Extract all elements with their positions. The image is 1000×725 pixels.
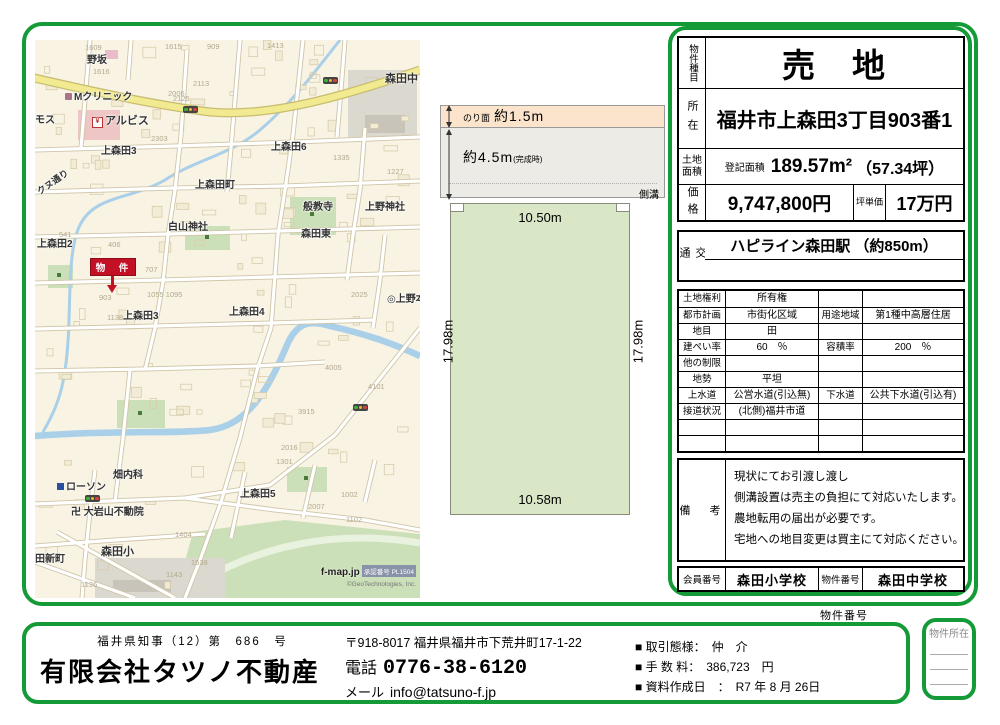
property-location-label: 物件所在 — [926, 625, 972, 640]
member-table: 会員番号 森田小学校 物件番号 森田中学校 — [677, 566, 965, 592]
detail-value — [862, 291, 963, 307]
license-number: 福井県知事（12）第 686 号 — [40, 633, 345, 649]
map-label: 上森田3 — [101, 147, 137, 157]
unit-price-label: 坪単価 — [853, 185, 885, 220]
deal-term-line: ■ 取引態様： 仲 介 — [635, 637, 892, 657]
map-label: 畑内科 — [113, 471, 143, 481]
map-brand: f-map.jp — [321, 567, 360, 578]
parcel-number: 909 — [207, 43, 220, 51]
map-label: 田新町 — [35, 555, 65, 565]
fill-value: 約4.5m — [463, 149, 513, 165]
map-label: ローソン — [57, 483, 106, 493]
company-address: 〒918-8017 福井県福井市下荒井町17-1-22 — [345, 632, 635, 651]
side-ditch-label: 側溝 — [639, 191, 659, 201]
property-marker-arrowhead — [107, 285, 117, 293]
detail-value — [862, 420, 963, 435]
property-number-value: 森田中学校 — [862, 568, 963, 590]
map-label: ◎上野本 — [387, 295, 420, 305]
property-address: 福井市上森田3丁目903番1 — [705, 89, 963, 148]
property-info-panel: 物件種目 売 地 所在 福井市上森田3丁目903番1 土地面積 登記面積 189… — [668, 26, 972, 596]
detail-label: 他の制限 — [679, 356, 725, 371]
detail-label — [818, 356, 862, 371]
map-label: 白山神社 — [168, 223, 208, 233]
price-label: 価格 — [679, 185, 705, 220]
detail-label: 土地権利 — [679, 291, 725, 307]
map-label: 卍 大岩山不動院 — [71, 508, 144, 518]
agency-identity: 福井県知事（12）第 686 号 有限会社タツノ不動産 — [40, 631, 345, 695]
detail-label — [818, 436, 862, 451]
map-label: 上森田4 — [229, 308, 265, 318]
ditch-notch-left — [450, 203, 464, 212]
parcel-number: 2303 — [151, 135, 168, 143]
map-label: 森田東 — [301, 230, 331, 240]
detail-value: 公共下水道(引込有) — [862, 388, 963, 403]
map-label: 野坂 — [87, 56, 107, 66]
parcel-number: 1538 — [191, 559, 208, 567]
map-label: 上野神社 — [365, 203, 405, 213]
blank-line — [930, 684, 968, 685]
detail-value — [725, 436, 818, 451]
parcel-number: 1615 — [165, 43, 182, 51]
map-label: モス — [35, 116, 55, 126]
parcel-number: 2007 — [308, 503, 325, 511]
map-label: 森田中 — [385, 74, 418, 85]
transport-label: 交通 — [679, 232, 705, 280]
parcel-number: 1404 — [175, 531, 192, 539]
parcel-number: 1301 — [276, 458, 293, 466]
remarks-line: 側溝設置は売主の負担にて対応いたします。 — [734, 488, 964, 509]
parcel-number: 1616 — [93, 68, 110, 76]
detail-value: 公営水道(引込無) — [725, 388, 818, 403]
detail-value — [862, 372, 963, 387]
location-label: 所在 — [679, 89, 705, 148]
transport-table: 交通 ハピライン森田駅 （約850m） — [677, 230, 965, 282]
area-label: 土地面積 — [679, 149, 705, 184]
remarks-text: 現状にてお引渡し渡し側溝設置は売主の負担にて対応いたします。農地転用の届出が必要… — [725, 460, 972, 560]
parcel-number: 3915 — [298, 408, 315, 416]
detail-value — [862, 324, 963, 339]
remarks-line: 農地転用の届出が必要です。 — [734, 509, 964, 530]
area-value: 189.57m² — [771, 156, 852, 178]
ditch-notch-right — [616, 203, 630, 212]
parcel-number: 1143 — [166, 571, 182, 579]
detail-label: 容積率 — [818, 340, 862, 355]
land-plot-diagram: のり面約1.5m 約4.5m(完成時) 側溝 10.50m 10.58m 17.… — [435, 95, 670, 525]
detail-value: (北側)福井市道 — [725, 404, 818, 419]
remarks-line: 宅地への地目変更は買主にて対応ください。 — [734, 530, 964, 551]
property-marker: 物 件 — [91, 259, 135, 275]
map-copyright: ©GeoTechnologies, Inc. — [321, 581, 416, 588]
map-approval-badge: 承認番号 PL1504 — [362, 565, 416, 577]
member-number-label: 会員番号 — [679, 568, 725, 590]
detail-value — [862, 404, 963, 419]
property-number-caption: 物件番号 — [820, 607, 868, 623]
parcel-number: 541 — [59, 231, 72, 239]
agency-contact: 〒918-8017 福井県福井市下荒井町17-1-22 電話0776-38-61… — [345, 631, 635, 695]
parcel-number: 2025 — [351, 291, 368, 299]
parcel-number: 903 — [99, 294, 112, 302]
dimension-arrows — [439, 105, 459, 205]
detail-label — [679, 436, 725, 451]
detail-value: 田 — [725, 324, 818, 339]
map-label: 上森田6 — [271, 143, 307, 153]
type-label: 物件種目 — [679, 38, 705, 88]
parcel-number: 4101 — [368, 383, 385, 391]
blank-line — [930, 669, 968, 670]
parcel-number: 1609 — [85, 44, 102, 52]
map-label: 上森田5 — [240, 490, 276, 500]
detail-value — [862, 436, 963, 451]
phone-number: 0776-38-6120 — [383, 657, 527, 680]
registered-area-label: 登記面積 — [725, 159, 765, 174]
slope-value: 約1.5m — [494, 108, 544, 124]
slope-dimension: のり面約1.5m — [463, 109, 544, 125]
parcel-number: 1102 — [346, 516, 362, 524]
transport-value: ハピライン森田駅 （約850m） — [705, 232, 963, 260]
remarks-label: 備 考 — [679, 460, 725, 560]
unit-price-value: 17万円 — [885, 185, 963, 220]
map-label: 森田小 — [101, 547, 134, 558]
detail-value: 所有権 — [725, 291, 818, 307]
traffic-light-icon — [85, 495, 100, 502]
deal-terms: ■ 取引態様： 仲 介■ 手 数 料： 386,723 円■ 資料作成日 ： R… — [635, 631, 892, 695]
left-depth: 17.98m — [442, 307, 455, 377]
location-map: 1609161616152006211321251413909230313351… — [35, 40, 420, 598]
parcel-number: 2125 — [173, 95, 190, 103]
detail-label: 都市計画 — [679, 308, 725, 323]
traffic-light-icon — [183, 106, 198, 113]
deal-term-line: ■ 手 数 料： 386,723 円 — [635, 657, 892, 677]
parcel-number: 1413 — [267, 42, 284, 50]
map-label: 般教寺 — [303, 203, 333, 213]
detail-label: 地勢 — [679, 372, 725, 387]
traffic-light-icon — [353, 404, 368, 411]
detail-label: 下水道 — [818, 388, 862, 403]
map-label: アルビス — [92, 116, 149, 128]
parcel-number: 1055 1095 — [147, 291, 182, 299]
parcel-number: 1136 — [81, 581, 97, 589]
detail-label — [818, 372, 862, 387]
detail-value: 第1種中高層住居 — [862, 308, 963, 323]
detail-label — [818, 324, 862, 339]
mail-label: メール — [345, 685, 384, 700]
detail-label: 接道状況 — [679, 404, 725, 419]
traffic-light-icon — [323, 77, 338, 84]
parcel-number: 1002 — [341, 491, 358, 499]
property-type: 売 地 — [705, 38, 963, 88]
property-marker-label: 物 件 — [96, 260, 131, 274]
details-table: 土地権利所有権都市計画市街化区域用途地域第1種中高層住居地目田建ぺい率60 ％容… — [677, 289, 965, 453]
summary-table: 物件種目 売 地 所在 福井市上森田3丁目903番1 土地面積 登記面積 189… — [677, 36, 965, 222]
slope-label: のり面 — [463, 113, 490, 123]
detail-value — [725, 356, 818, 371]
phone-label: 電話 — [345, 660, 377, 677]
map-label: 上森田2 — [37, 240, 73, 250]
map-label: Mクリニック — [65, 93, 132, 103]
detail-value: 60 ％ — [725, 340, 818, 355]
property-number-label: 物件番号 — [818, 568, 862, 590]
detail-label — [679, 420, 725, 435]
detail-label — [818, 420, 862, 435]
detail-value — [862, 356, 963, 371]
detail-label: 地目 — [679, 324, 725, 339]
blank-line — [930, 654, 968, 655]
member-number-value: 森田小学校 — [725, 568, 818, 590]
price-value: 9,747,800円 — [705, 185, 853, 220]
detail-label: 用途地域 — [818, 308, 862, 323]
parcel-number: 4005 — [325, 364, 342, 372]
parcel-number: 2016 — [281, 444, 298, 452]
detail-value: 市街化区域 — [725, 308, 818, 323]
detail-label — [818, 404, 862, 419]
map-label: 上森田町 — [195, 181, 235, 191]
bottom-width: 10.58m — [495, 493, 585, 506]
fill-dotted-line — [449, 183, 657, 184]
detail-value — [725, 420, 818, 435]
top-width: 10.50m — [495, 211, 585, 224]
area-tsubo: （57.34坪） — [856, 155, 944, 179]
detail-value: 200 ％ — [862, 340, 963, 355]
land-parcel-shape — [450, 203, 630, 515]
land-area-cell: 登記面積 189.57m² （57.34坪） — [705, 149, 963, 184]
parcel-number: 707 — [145, 266, 158, 274]
property-location-box: 物件所在 — [922, 618, 976, 700]
parcel-number: 1138 — [107, 314, 123, 322]
parcel-number: 1335 — [333, 154, 350, 162]
parcel-number: 1227 — [387, 168, 404, 176]
transport-empty-row — [705, 260, 963, 280]
detail-value: 平坦 — [725, 372, 818, 387]
company-name: 有限会社タツノ不動産 — [40, 652, 345, 689]
parcel-number: 2113 — [193, 80, 209, 88]
deal-term-line: ■ 資料作成日 ： R7 年 8 月 26日 — [635, 677, 892, 697]
fill-dimension: 約4.5m(完成時) — [463, 150, 542, 166]
detail-label: 建ぺい率 — [679, 340, 725, 355]
agency-info-box: 福井県知事（12）第 686 号 有限会社タツノ不動産 〒918-8017 福井… — [22, 622, 910, 704]
detail-label: 上水道 — [679, 388, 725, 403]
map-attribution: f-map.jp承認番号 PL1504 ©GeoTechnologies, In… — [321, 562, 416, 588]
detail-label — [818, 291, 862, 307]
remarks-line: 現状にてお引渡し渡し — [734, 467, 964, 488]
fill-note: (完成時) — [513, 155, 542, 164]
right-depth: 17.98m — [632, 307, 645, 377]
parcel-number: 406 — [108, 241, 121, 249]
remarks-table: 備 考 現状にてお引渡し渡し側溝設置は売主の負担にて対応いたします。農地転用の届… — [677, 458, 965, 562]
map-label: 上森田3 — [123, 312, 159, 322]
mail-address: info@tatsuno-f.jp — [390, 684, 496, 700]
